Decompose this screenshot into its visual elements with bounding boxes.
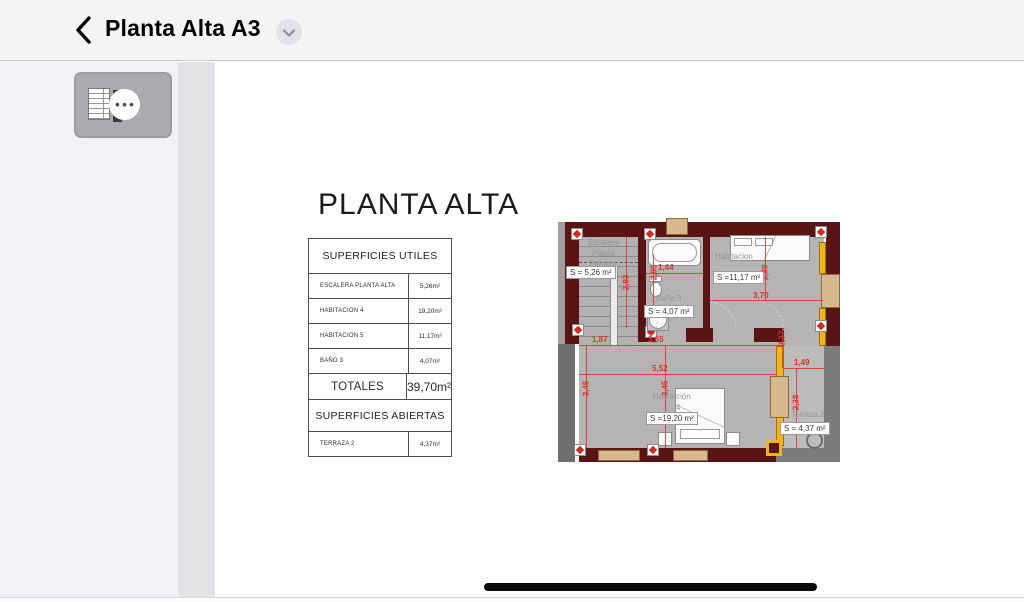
thumbnail-table-graphic <box>88 88 110 120</box>
plan-marker-icon <box>574 444 586 456</box>
room-label-hab4: Habitación <box>653 392 691 401</box>
document-viewer: Planta Alta A3 ••• PLANTA ALTA SUPERFICI… <box>0 0 1024 602</box>
table-row: BAÑO 3 4,07m² <box>309 348 451 373</box>
row-value: 4,37m² <box>409 432 451 456</box>
dimension-label: 1,87 <box>592 335 608 344</box>
room-number-hab4: 4 <box>676 403 680 412</box>
surfaces-table: SUPERFICIES UTILES ESCALERA PLANTA ALTA … <box>308 238 452 457</box>
row-value: 5,26m² <box>409 274 451 298</box>
bathtub-inner <box>652 243 697 262</box>
chevron-down-icon <box>283 25 295 40</box>
dimension-label: 2,37 <box>777 331 786 347</box>
pillow <box>734 238 752 246</box>
bottom-hairline <box>0 597 1024 602</box>
area-box-escalera: S = 5,26 m² <box>566 266 616 279</box>
dimension-label: 3,45 <box>581 381 590 397</box>
pdf-page: PLANTA ALTA SUPERFICIES UTILES ESCALERA … <box>215 62 1024 597</box>
home-indicator[interactable] <box>484 583 817 591</box>
terrace-corner-post <box>766 440 782 456</box>
dimension-label: 3,65 <box>648 335 664 344</box>
row-label: BAÑO 3 <box>309 349 409 373</box>
row-value: 11,17m² <box>409 324 451 348</box>
table-header-utiles: SUPERFICIES UTILES <box>309 239 451 273</box>
terrace-edge-bottom <box>776 448 840 462</box>
wall-left-lower <box>558 344 575 462</box>
chevron-left-icon <box>74 15 93 48</box>
area-box-terraza: S = 4,37 m² <box>780 422 830 435</box>
dimension-label: 5,52 <box>652 364 668 373</box>
dimension-line <box>579 374 776 375</box>
ellipsis-icon: ••• <box>113 97 137 112</box>
wall-bath-hab5 <box>703 237 710 332</box>
dimension-label: 2,05 <box>649 265 658 281</box>
plan-marker-icon <box>572 324 584 336</box>
area-box-hab4: S =19,20 m² <box>646 412 698 425</box>
floor-plan: 1,44 2,93 2,05 3,70 2,88 1,87 3,65 5,52 … <box>558 216 840 468</box>
back-button[interactable] <box>74 15 100 47</box>
row-value: 4,07m² <box>409 349 451 373</box>
dimension-line <box>586 345 587 448</box>
dimension-label: 1,44 <box>658 263 674 272</box>
row-label: TERRAZA 2 <box>309 432 409 456</box>
table-row: TERRAZA 2 4,37m² <box>309 431 451 456</box>
thumbnail-sidebar: ••• <box>0 62 178 597</box>
document-title: Planta Alta A3 <box>105 15 261 42</box>
room-label-hab5: Habitacion <box>715 252 753 261</box>
window-bottom <box>598 450 640 461</box>
plan-marker-icon <box>815 320 827 332</box>
area-box-bano: S = 4,07 m² <box>644 305 694 318</box>
row-value: 19,20m² <box>409 299 451 323</box>
bathtub-icon <box>648 239 701 266</box>
wall-interior <box>686 328 713 342</box>
dimension-line <box>710 300 823 301</box>
window-glass-right <box>819 242 826 274</box>
room-label-escalera: Escalera <box>588 238 619 247</box>
totals-value: 39,70m² <box>407 374 451 399</box>
window-frame-right <box>821 274 840 308</box>
scroll-gutter <box>178 62 215 597</box>
nightstand <box>726 432 740 446</box>
window-top <box>666 218 688 235</box>
page-title: PLANTA ALTA <box>318 188 519 222</box>
table-header-abiertas: SUPERFICIES ABIERTAS <box>309 399 451 431</box>
dimension-label: 2,93 <box>621 275 630 291</box>
title-dropdown-button[interactable] <box>276 19 302 45</box>
plan-marker-icon <box>815 226 827 238</box>
area-box-hab5: S =11,17 m² <box>713 271 764 284</box>
table-row: ESCALERA PLANTA ALTA 5,26m² <box>309 273 451 298</box>
pillow <box>755 238 773 246</box>
nav-bar: Planta Alta A3 <box>0 0 1024 61</box>
row-label: HABITACION 5 <box>309 324 409 348</box>
dimension-label: 2,38 <box>791 395 800 411</box>
totals-label: TOTALES <box>309 374 407 399</box>
window-bottom <box>673 450 708 461</box>
thumbnail-more-badge[interactable]: ••• <box>109 89 140 120</box>
terrace-edge-right <box>824 346 840 462</box>
room-label-escalera: Planta <box>592 249 615 258</box>
row-label: ESCALERA PLANTA ALTA <box>309 274 409 298</box>
dimension-line <box>579 345 784 346</box>
dimension-line <box>784 368 824 369</box>
dimension-label: 3,70 <box>753 291 769 300</box>
room-label-terraza: Terraza 2 <box>791 410 824 419</box>
plan-marker-icon <box>571 228 583 240</box>
table-row: HABITACION 4 19,20m² <box>309 298 451 323</box>
table-row-totals: TOTALES 39,70m² <box>309 373 451 399</box>
window-frame-terrace <box>770 376 789 418</box>
dimension-label: 1,49 <box>794 358 810 367</box>
room-label-bano: Baño 3 <box>656 294 681 303</box>
table-row: HABITACION 5 11,17m² <box>309 323 451 348</box>
pillow <box>680 429 720 439</box>
neighbor-wall <box>558 222 565 344</box>
row-label: HABITACION 4 <box>309 299 409 323</box>
page-thumbnail[interactable]: ••• <box>74 72 172 138</box>
